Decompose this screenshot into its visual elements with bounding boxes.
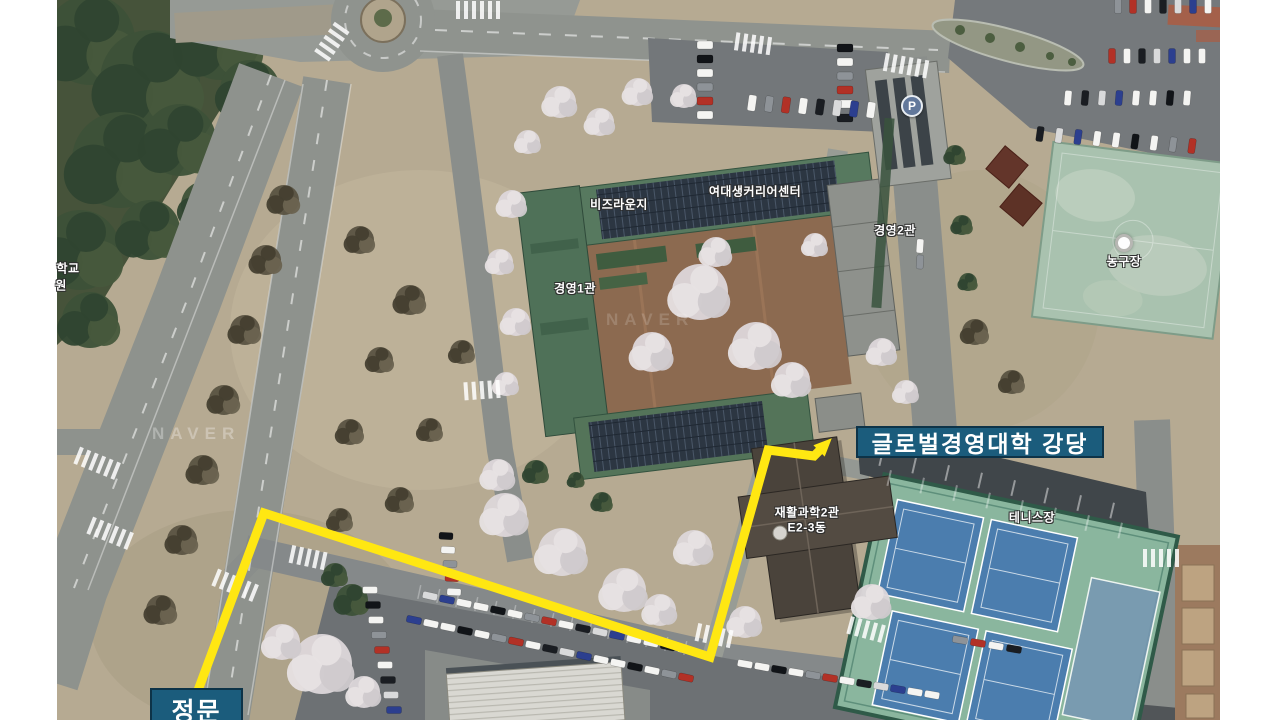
satellite-map[interactable] [0, 0, 1280, 720]
basketball-court [1032, 142, 1234, 339]
slide-canvas: 비즈라운지여대생커리어센터경영1관경영2관농구장테니스장재활과학2관E2-3동학… [0, 0, 1280, 720]
